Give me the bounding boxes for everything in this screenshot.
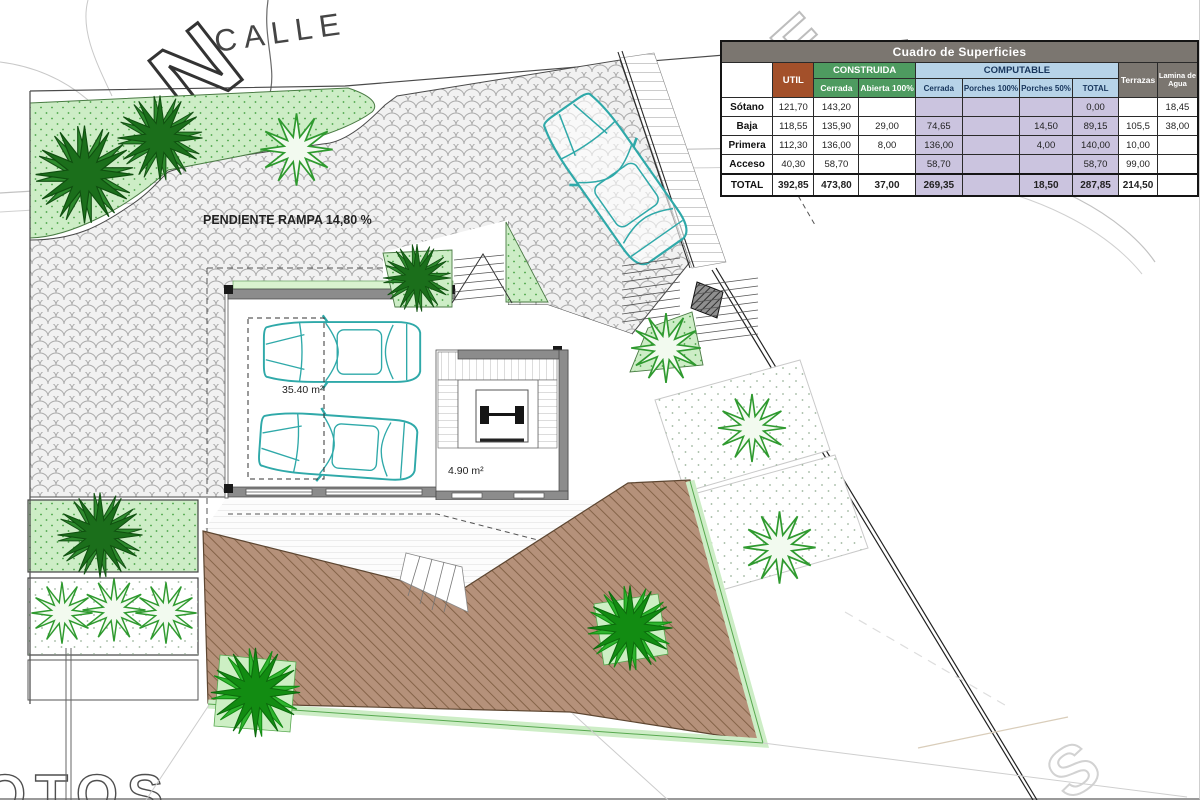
street-label: CALLE [212,6,349,59]
table-cell: 143,20 [814,98,859,117]
header-comp-porches50: Porches 50% [1020,79,1073,98]
garage-area-label: 35.40 m² [282,384,324,396]
table-cell: 74,65 [915,117,962,136]
table-cell: 89,15 [1072,117,1118,136]
table-cell: 269,35 [915,174,962,196]
table-cell: 58,70 [1072,155,1118,175]
table-cell [1157,136,1198,155]
table-cell: 135,90 [814,117,859,136]
table-cell: 38,00 [1157,117,1198,136]
table-title: Cuadro de Superficies [721,41,1198,63]
table-cell: 58,70 [814,155,859,175]
table-cell [915,98,962,117]
boundary-corner-marker [691,282,723,318]
table-row: Baja118,55135,9029,0074,6514,5089,15105,… [721,117,1198,136]
table-cell [962,117,1019,136]
table-cell: 58,70 [915,155,962,175]
table-cell: 14,50 [1020,117,1073,136]
table-cell: 40,30 [773,155,814,175]
table-cell [1020,98,1073,117]
table-cell [1020,155,1073,175]
table-cell: 18,45 [1157,98,1198,117]
table-cell: 4,00 [1020,136,1073,155]
table-row: Primera112,30136,008,00136,004,00140,001… [721,136,1198,155]
table-row-total: TOTAL392,85473,8037,00269,3518,50287,852… [721,174,1198,196]
table-cell: 105,5 [1119,117,1158,136]
header-construida: CONSTRUIDA [814,63,915,79]
table-cell: 392,85 [773,174,814,196]
header-comp-porches100: Porches 100% [962,79,1019,98]
table-cell [1157,174,1198,196]
ramp-label: PENDIENTE RAMPA 14,80 % [203,213,372,227]
row-label: Sótano [721,98,773,117]
watermark-s: S [1033,726,1114,800]
planting-boxes-west [28,480,198,700]
table-row: Acceso40,3058,7058,7058,7099,00 [721,155,1198,175]
table-cell [962,155,1019,175]
table-cell [1119,98,1158,117]
header-util: UTIL [773,63,814,98]
table-cell: 0,00 [1072,98,1118,117]
table-cell [962,136,1019,155]
table-cell: 10,00 [1119,136,1158,155]
header-comp-total: TOTAL [1072,79,1118,98]
header-con-abierta: Abierta 100% [859,79,915,98]
row-label: TOTAL [721,174,773,196]
header-lamina: Lamina de Agua [1157,63,1198,98]
car-garage-1 [264,315,420,388]
table-cell: 29,00 [859,117,915,136]
table-cell: 99,00 [1119,155,1158,175]
table-cell: 287,85 [1072,174,1118,196]
table-cell [859,155,915,175]
table-cell [962,98,1019,117]
row-label: Acceso [721,155,773,175]
table-cell: 136,00 [814,136,859,155]
surface-table-body: Sótano121,70143,200,0018,45Baja118,55135… [721,98,1198,197]
table-cell [1157,155,1198,175]
core-wall-top [458,350,568,359]
surfaces-table: Cuadro de Superficies UTIL CONSTRUIDA CO… [720,40,1199,197]
table-cell: 214,50 [1119,174,1158,196]
table-cell [859,98,915,117]
table-cell: 140,00 [1072,136,1118,155]
table-row: Sótano121,70143,200,0018,45 [721,98,1198,117]
stair-area-label: 4.90 m² [448,465,484,477]
stair-core: 4.90 m² [436,350,568,520]
table-cell: 118,55 [773,117,814,136]
table-cell: 8,00 [859,136,915,155]
row-label: Primera [721,136,773,155]
header-con-cerrada: Cerrada [814,79,859,98]
header-blank [721,63,773,98]
watermark-bottom-left: OTOS [0,764,172,800]
table-cell: 136,00 [915,136,962,155]
site-plan-page: E S OTOS N CALLE [0,0,1200,800]
table-cell: 18,50 [1020,174,1073,196]
header-comp-cerrada: Cerrada [915,79,962,98]
table-cell [962,174,1019,196]
header-terrazas: Terrazas [1119,63,1158,98]
table-cell: 112,30 [773,136,814,155]
header-computable: COMPUTABLE [915,63,1118,79]
core-wall-right [559,350,568,500]
row-label: Baja [721,117,773,136]
table-cell: 37,00 [859,174,915,196]
table-cell: 473,80 [814,174,859,196]
garage-windows [246,489,422,495]
table-cell: 121,70 [773,98,814,117]
